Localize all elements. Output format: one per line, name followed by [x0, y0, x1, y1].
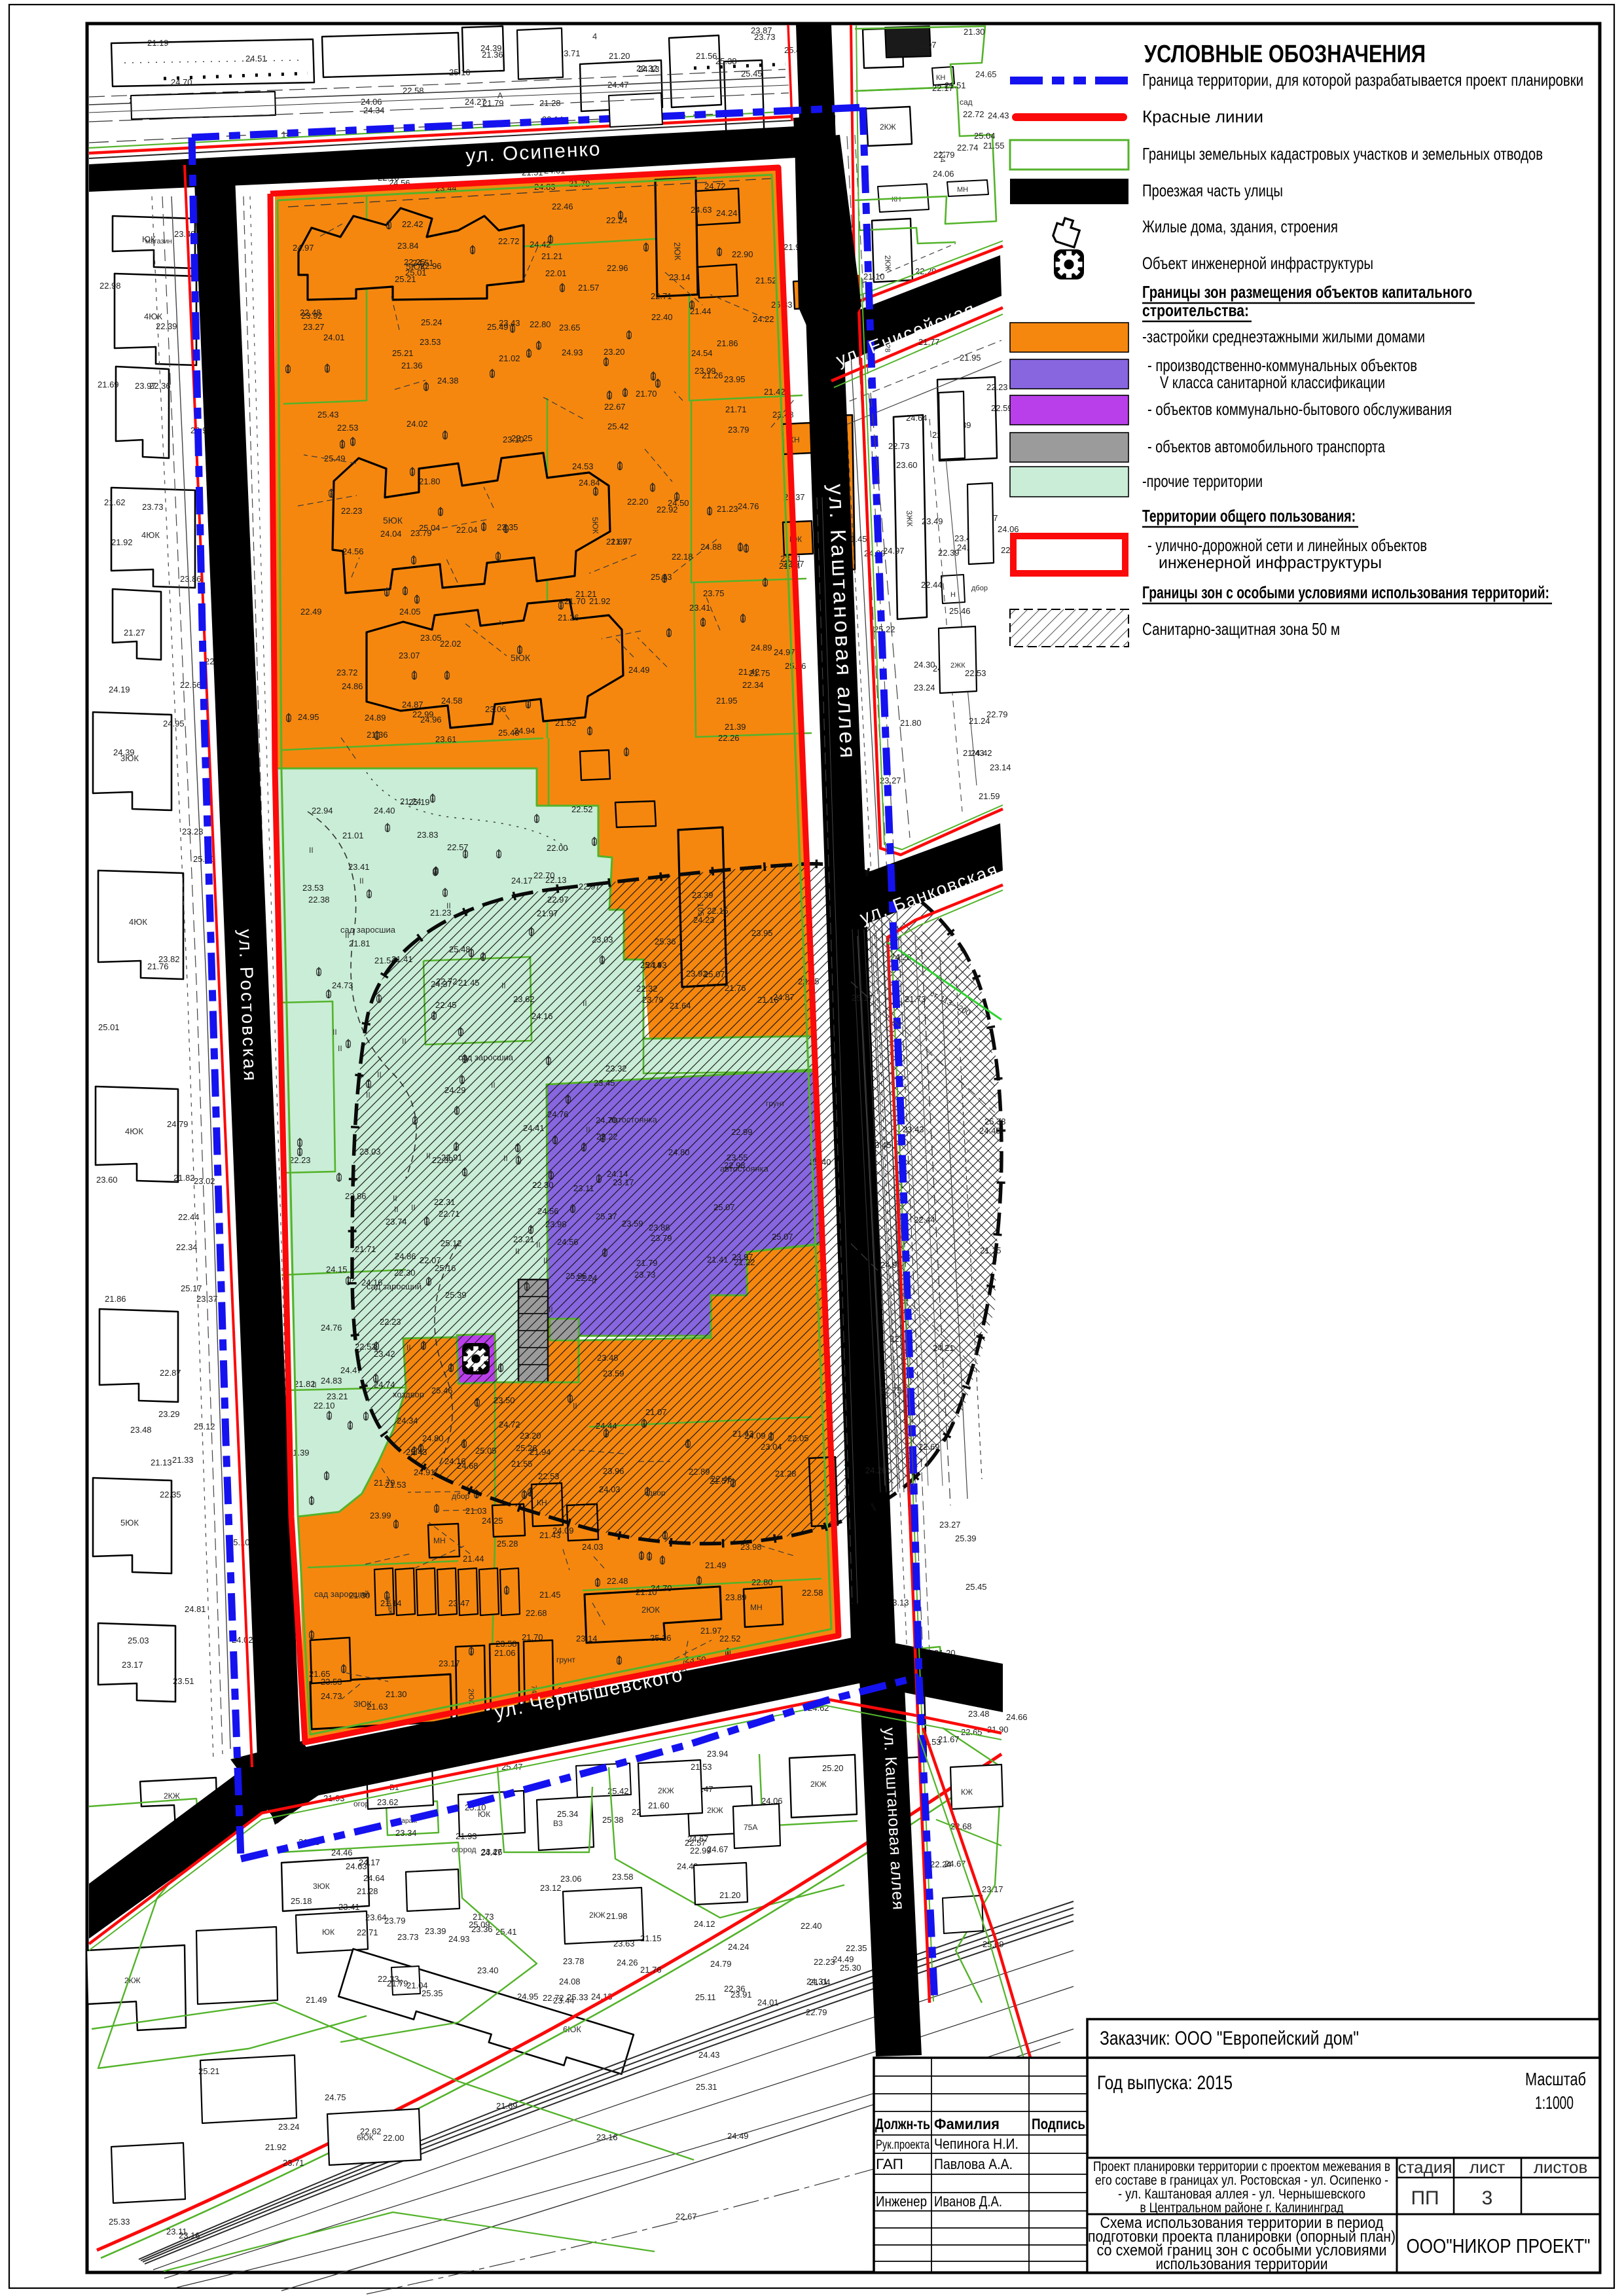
- svg-text:22.02: 22.02: [440, 639, 461, 649]
- svg-text:Н: Н: [950, 591, 956, 599]
- svg-text:- ул. Каштановая аллея - ул. Ч: - ул. Каштановая аллея - ул. Чернышевско…: [1118, 2187, 1365, 2202]
- svg-text:24.02: 24.02: [406, 419, 428, 429]
- svg-text:21.67: 21.67: [938, 1734, 960, 1744]
- svg-text:25.28: 25.28: [497, 1539, 518, 1549]
- svg-text:21.26: 21.26: [558, 613, 579, 622]
- svg-text:23.61: 23.61: [435, 734, 457, 744]
- svg-text:22.53: 22.53: [965, 668, 986, 678]
- svg-text:2КЖ: 2КЖ: [883, 255, 893, 272]
- svg-text:23.21: 23.21: [327, 1391, 348, 1401]
- svg-text:21.65: 21.65: [309, 1669, 331, 1679]
- svg-text:25.45: 25.45: [965, 1582, 987, 1592]
- svg-text:24.03: 24.03: [582, 1542, 604, 1552]
- svg-text:21.49: 21.49: [306, 1995, 327, 2005]
- svg-text:21.30: 21.30: [349, 1590, 370, 1600]
- svg-text:23.29: 23.29: [158, 1409, 180, 1419]
- svg-text:24.40: 24.40: [979, 1126, 1001, 1136]
- svg-text:25.43: 25.43: [317, 410, 339, 420]
- svg-text:23.17: 23.17: [122, 1660, 143, 1670]
- svg-text:Подпись: Подпись: [1032, 2115, 1085, 2132]
- svg-text:24.63: 24.63: [346, 1861, 367, 1871]
- svg-text:В3: В3: [553, 1819, 563, 1828]
- svg-text:его составе в границах ул. Рос: его составе в границах ул. Ростовская - …: [1095, 2173, 1388, 2188]
- svg-text:2КЖ: 2КЖ: [707, 1806, 723, 1815]
- svg-text:25.38: 25.38: [715, 56, 737, 66]
- svg-text:24.88: 24.88: [700, 542, 722, 552]
- svg-text:22.40: 22.40: [801, 1921, 822, 1931]
- svg-text:23.73: 23.73: [754, 32, 776, 42]
- svg-text:22.80: 22.80: [751, 1577, 773, 1587]
- svg-text:22.42: 22.42: [402, 219, 424, 229]
- svg-text:23.53: 23.53: [420, 337, 441, 347]
- svg-text:25.30: 25.30: [840, 1963, 861, 1973]
- svg-text:24.12: 24.12: [694, 1919, 715, 1929]
- svg-text:23.73: 23.73: [142, 502, 164, 512]
- svg-text:22.00: 22.00: [383, 2133, 405, 2143]
- svg-text:23.23: 23.23: [182, 827, 204, 836]
- svg-text:24.70: 24.70: [171, 77, 192, 87]
- svg-text:КН: КН: [892, 196, 901, 204]
- svg-text:23.94: 23.94: [707, 1749, 729, 1759]
- svg-text:22.52: 22.52: [719, 1634, 741, 1643]
- svg-text:Граница территории, для которо: Граница территории, для которой разрабат…: [1142, 70, 1583, 90]
- svg-text:21.30: 21.30: [386, 1689, 407, 1699]
- svg-text:24.01: 24.01: [323, 332, 345, 342]
- svg-text:24.53: 24.53: [572, 461, 594, 471]
- svg-text:23.78: 23.78: [563, 1956, 585, 1966]
- svg-text:25.17: 25.17: [852, 993, 873, 1003]
- svg-text:75А: 75А: [744, 1823, 757, 1832]
- svg-text:24.97: 24.97: [293, 243, 314, 253]
- svg-text:25.19: 25.19: [408, 797, 430, 807]
- svg-text:25.16: 25.16: [449, 67, 471, 77]
- svg-text:2КЖ: 2КЖ: [164, 1791, 180, 1801]
- svg-text:23.48: 23.48: [968, 1709, 990, 1719]
- svg-text:23.79: 23.79: [410, 528, 432, 538]
- svg-text:-застройки среднеэтажными жилы: -застройки среднеэтажными жилыми домами: [1142, 327, 1425, 346]
- svg-text:Павлова А.А.: Павлова А.А.: [934, 2156, 1013, 2172]
- svg-text:21.98: 21.98: [606, 1911, 628, 1921]
- svg-text:22.80: 22.80: [530, 319, 551, 329]
- svg-text:21.03: 21.03: [465, 1506, 487, 1516]
- svg-text:23.12: 23.12: [540, 1883, 562, 1893]
- svg-text:Масштаб: Масштаб: [1525, 2069, 1586, 2089]
- svg-text:25.31: 25.31: [696, 2082, 717, 2092]
- svg-text:24.27: 24.27: [465, 97, 486, 107]
- svg-text:24.79: 24.79: [167, 1119, 189, 1129]
- svg-text:24.93: 24.93: [448, 1934, 470, 1944]
- svg-text:21.53: 21.53: [691, 1762, 712, 1772]
- svg-text:22.35: 22.35: [160, 1490, 181, 1499]
- svg-text:22.40: 22.40: [651, 312, 673, 322]
- svg-text:22.44: 22.44: [921, 580, 943, 590]
- svg-text:25.17: 25.17: [181, 1283, 202, 1293]
- svg-text:21.62: 21.62: [104, 497, 126, 507]
- svg-text:21.55: 21.55: [983, 141, 1005, 151]
- svg-text:21.92: 21.92: [111, 537, 133, 547]
- svg-text:21.04: 21.04: [406, 1981, 428, 1990]
- svg-text:ООО"НИКОР ПРОЕКТ": ООО"НИКОР ПРОЕКТ": [1407, 2234, 1591, 2257]
- svg-text:Рук.проекта: Рук.проекта: [876, 2138, 929, 2152]
- svg-text:25.21: 25.21: [198, 2066, 220, 2076]
- svg-text:21.70: 21.70: [636, 389, 657, 399]
- svg-text:25.43: 25.43: [651, 572, 672, 582]
- svg-text:25.41: 25.41: [496, 1927, 517, 1937]
- svg-text:21.73: 21.73: [905, 994, 926, 1004]
- svg-text:21.42: 21.42: [764, 387, 785, 397]
- svg-text:23.07: 23.07: [399, 651, 420, 660]
- svg-text:22.25: 22.25: [511, 433, 533, 443]
- svg-text:Заказчик: ООО "Европейский дом: Заказчик: ООО "Европейский дом": [1100, 2028, 1359, 2049]
- svg-text:4ЮК: 4ЮК: [125, 1126, 143, 1136]
- svg-text:22.38: 22.38: [308, 895, 330, 905]
- svg-text:24.89: 24.89: [751, 643, 772, 653]
- svg-text:25.09: 25.09: [983, 1939, 1004, 1949]
- svg-text:-прочие территории: -прочие территории: [1142, 471, 1263, 491]
- svg-text:23.41: 23.41: [338, 1902, 360, 1912]
- svg-text:22.01: 22.01: [545, 268, 567, 278]
- svg-text:24.81: 24.81: [185, 1604, 206, 1614]
- svg-text:25.26: 25.26: [650, 1633, 672, 1643]
- svg-text:2КЖ: 2КЖ: [658, 1786, 674, 1795]
- svg-text:24.96: 24.96: [420, 715, 442, 725]
- svg-text:ПП: ПП: [1411, 2187, 1439, 2209]
- svg-text:21.56: 21.56: [696, 51, 717, 61]
- svg-text:II: II: [333, 1028, 337, 1037]
- svg-text:24.73: 24.73: [321, 1691, 342, 1701]
- svg-text:II: II: [446, 901, 451, 910]
- svg-text:II: II: [359, 876, 364, 886]
- svg-text:24.38: 24.38: [437, 376, 459, 386]
- svg-text:21.52: 21.52: [755, 276, 777, 285]
- svg-text:24.25: 24.25: [482, 1516, 503, 1526]
- svg-text:24.24: 24.24: [716, 208, 738, 218]
- svg-text:22.39: 22.39: [938, 548, 960, 558]
- svg-text:22.59: 22.59: [991, 403, 1013, 413]
- svg-text:23.53: 23.53: [302, 883, 324, 893]
- svg-text:2ЖК: 2ЖК: [950, 662, 965, 670]
- svg-text:24.87: 24.87: [402, 700, 424, 709]
- svg-text:25.04: 25.04: [974, 131, 996, 141]
- svg-text:листов: листов: [1534, 2157, 1588, 2177]
- svg-text:25.09: 25.09: [469, 1920, 490, 1929]
- svg-text:22.74: 22.74: [957, 143, 979, 152]
- svg-text:22.49: 22.49: [300, 607, 322, 617]
- svg-text:24.79: 24.79: [710, 1959, 732, 1969]
- svg-text:24.01: 24.01: [757, 1998, 779, 2007]
- svg-text:22.34: 22.34: [176, 1242, 198, 1252]
- svg-text:24.66: 24.66: [1006, 1712, 1028, 1722]
- svg-text:23.64: 23.64: [365, 1912, 387, 1922]
- svg-text:24.95: 24.95: [298, 712, 319, 722]
- svg-text:2КЖ: 2КЖ: [880, 122, 896, 132]
- svg-text:24.58: 24.58: [441, 696, 463, 706]
- svg-text:22.48: 22.48: [300, 308, 321, 317]
- svg-text:Красные линии: Красные линии: [1142, 107, 1263, 126]
- svg-text:дбор: дбор: [452, 1492, 470, 1501]
- svg-text:22.96: 22.96: [607, 263, 628, 273]
- svg-text:Санитарно-защитная зона 50 м: Санитарно-защитная зона 50 м: [1142, 619, 1340, 639]
- svg-text:Объект инженерной инфраструкту: Объект инженерной инфраструктуры: [1142, 253, 1373, 273]
- svg-text:Проезжая часть улицы: Проезжая часть улицы: [1142, 181, 1283, 200]
- svg-text:лист: лист: [1470, 2157, 1506, 2177]
- svg-text:V класса санитарной классифика: V класса санитарной классификации: [1160, 372, 1385, 392]
- svg-text:22.79: 22.79: [986, 709, 1008, 719]
- svg-text:24.95: 24.95: [517, 1992, 539, 2001]
- svg-text:22.52: 22.52: [571, 804, 593, 814]
- svg-text:24.76: 24.76: [321, 1323, 342, 1333]
- svg-text:22.71: 22.71: [651, 291, 672, 301]
- svg-text:21.59: 21.59: [979, 791, 1000, 801]
- svg-text:Год выпуска: 2015: Год выпуска: 2015: [1097, 2072, 1233, 2094]
- svg-text:23.40: 23.40: [477, 1965, 499, 1975]
- svg-text:22.10: 22.10: [314, 1401, 335, 1410]
- svg-text:22.35: 22.35: [846, 1943, 867, 1953]
- svg-text:22.72: 22.72: [963, 109, 984, 119]
- svg-text:23.79: 23.79: [728, 425, 749, 435]
- svg-text:24.67: 24.67: [707, 1844, 729, 1854]
- svg-text:2КЖ: 2КЖ: [810, 1780, 827, 1789]
- svg-text:24.63: 24.63: [691, 205, 712, 215]
- svg-text:23.71: 23.71: [283, 2158, 304, 2168]
- svg-text:21.71: 21.71: [725, 404, 747, 414]
- svg-text:22.87: 22.87: [160, 1368, 181, 1378]
- svg-text:24.64: 24.64: [363, 1873, 385, 1883]
- svg-text:23.58: 23.58: [496, 1639, 517, 1649]
- svg-text:22.23: 22.23: [289, 1155, 311, 1165]
- svg-text:24.07: 24.07: [915, 40, 937, 50]
- svg-text:24.43: 24.43: [698, 2050, 720, 2060]
- svg-text:25.46: 25.46: [949, 606, 971, 616]
- svg-text:23.60: 23.60: [96, 1175, 118, 1185]
- svg-text:23.05: 23.05: [420, 633, 442, 643]
- svg-text:22.46: 22.46: [552, 202, 573, 211]
- svg-text:25.33: 25.33: [984, 1117, 1006, 1126]
- svg-text:21.44: 21.44: [463, 1554, 484, 1564]
- svg-text:21.36: 21.36: [482, 50, 503, 60]
- svg-text:21.23: 21.23: [717, 504, 738, 514]
- svg-text:24.06: 24.06: [933, 169, 954, 179]
- svg-text:23.14: 23.14: [576, 1634, 598, 1643]
- svg-text:24.39: 24.39: [113, 747, 135, 757]
- svg-text:24.04: 24.04: [380, 529, 402, 539]
- svg-text:МН: МН: [433, 1536, 446, 1545]
- svg-text:21.30: 21.30: [964, 27, 985, 37]
- svg-text:стадия: стадия: [1398, 2157, 1453, 2177]
- svg-text:23.51: 23.51: [173, 1676, 194, 1686]
- svg-text:23.27: 23.27: [880, 776, 901, 785]
- svg-text:25.36: 25.36: [785, 661, 806, 671]
- svg-text:24.72: 24.72: [704, 181, 726, 191]
- svg-text:6ЮК: 6ЮК: [563, 2024, 581, 2034]
- svg-text:23.49: 23.49: [922, 516, 943, 526]
- svg-text:23.43: 23.43: [499, 318, 520, 328]
- svg-text:21.39: 21.39: [725, 722, 746, 732]
- svg-text:21.76: 21.76: [640, 1965, 662, 1975]
- svg-text:Территории общего пользования:: Территории общего пользования:: [1142, 506, 1356, 526]
- svg-text:строительства:: строительства:: [1142, 300, 1249, 320]
- svg-text:21.20: 21.20: [719, 1890, 741, 1900]
- svg-text:23.44: 23.44: [553, 1996, 575, 2005]
- svg-text:23.82: 23.82: [158, 954, 180, 964]
- svg-text:дбор: дбор: [971, 584, 988, 592]
- svg-text:22.62: 22.62: [360, 2126, 382, 2136]
- svg-text:23.60: 23.60: [896, 460, 918, 470]
- svg-text:24.26: 24.26: [865, 1465, 887, 1475]
- svg-text:II: II: [312, 1380, 317, 1390]
- svg-text:- объектов автомобильного тран: - объектов автомобильного транспорта: [1147, 437, 1385, 456]
- svg-text:22.58: 22.58: [403, 86, 424, 96]
- svg-text:25.34: 25.34: [557, 1809, 579, 1819]
- svg-text:21.95: 21.95: [716, 696, 738, 706]
- svg-text:3ЖК: 3ЖК: [905, 511, 914, 527]
- svg-text:использования территории: использования территории: [1156, 2255, 1328, 2273]
- svg-text:23.41: 23.41: [689, 603, 711, 613]
- svg-text:24.43: 24.43: [988, 111, 1009, 120]
- svg-text:23.65: 23.65: [559, 323, 581, 332]
- svg-text:23.34: 23.34: [395, 1828, 417, 1838]
- svg-text:21.57: 21.57: [578, 283, 600, 293]
- svg-text:23.14: 23.14: [990, 762, 1011, 772]
- svg-text:22.23: 22.23: [341, 506, 363, 516]
- svg-text:21.86: 21.86: [105, 1294, 126, 1304]
- svg-text:22.20: 22.20: [627, 497, 649, 507]
- svg-text:МН: МН: [957, 186, 968, 194]
- svg-text:22.72: 22.72: [498, 236, 520, 246]
- svg-text:23.27: 23.27: [939, 1520, 961, 1530]
- svg-text:Должн-ть: Должн-ть: [875, 2115, 930, 2132]
- svg-text:21.13: 21.13: [151, 1458, 172, 1467]
- svg-text:22.67: 22.67: [676, 2212, 697, 2221]
- svg-text:24.76: 24.76: [738, 501, 759, 511]
- svg-text:Жилые дома, здания, строения: Жилые дома, здания, строения: [1142, 217, 1338, 236]
- svg-text:24.75: 24.75: [325, 2092, 346, 2102]
- svg-text:23.95: 23.95: [724, 374, 746, 384]
- svg-text:21.15: 21.15: [980, 1246, 1001, 1255]
- svg-text:23.16: 23.16: [596, 2132, 618, 2142]
- svg-text:25.11: 25.11: [695, 1992, 716, 2002]
- svg-text:Инженер: Инженер: [876, 2193, 927, 2210]
- svg-text:23.20: 23.20: [604, 347, 625, 357]
- svg-text:21.52: 21.52: [555, 718, 577, 728]
- svg-text:21.43: 21.43: [539, 1530, 561, 1540]
- svg-text:Границы земельных кадастровых: Границы земельных кадастровых участков и…: [1142, 144, 1543, 164]
- svg-text:II: II: [309, 846, 314, 855]
- svg-text:22.17: 22.17: [932, 83, 954, 93]
- svg-text:УСЛОВНЫЕ ОБОЗНАЧЕНИЯ: УСЛОВНЫЕ ОБОЗНАЧЕНИЯ: [1144, 41, 1426, 68]
- svg-text:25.21: 25.21: [392, 348, 414, 358]
- svg-text:Чепинога Н.И.: Чепинога Н.И.: [934, 2136, 1019, 2152]
- svg-text:22.44: 22.44: [178, 1212, 200, 1222]
- svg-text:3: 3: [1482, 2187, 1493, 2209]
- svg-text:21.92: 21.92: [589, 596, 611, 606]
- svg-text:21.69: 21.69: [606, 537, 628, 547]
- svg-text:5ЮК: 5ЮК: [120, 1518, 139, 1528]
- svg-text:23.17: 23.17: [982, 1884, 1003, 1894]
- svg-text:ЮК: ЮК: [322, 1928, 334, 1937]
- svg-text:Границы зон с особыми условиям: Границы зон с особыми условиями использо…: [1142, 583, 1549, 602]
- svg-text:24.26: 24.26: [617, 1958, 638, 1967]
- svg-text:24.15: 24.15: [326, 1265, 348, 1274]
- svg-text:24.22: 24.22: [753, 314, 774, 324]
- svg-text:грунт: грунт: [556, 1655, 576, 1664]
- svg-text:23.75: 23.75: [703, 588, 725, 598]
- svg-text:22.53: 22.53: [337, 423, 359, 433]
- svg-text:23.48: 23.48: [130, 1425, 152, 1435]
- svg-text:23.99: 23.99: [370, 1511, 391, 1520]
- svg-text:23.39: 23.39: [425, 1926, 446, 1936]
- svg-text:инженерной инфраструктуры: инженерной инфраструктуры: [1159, 552, 1382, 572]
- svg-text:21.45: 21.45: [539, 1590, 561, 1600]
- svg-text:24.84: 24.84: [579, 478, 600, 488]
- svg-text:22.23: 22.23: [814, 1957, 835, 1967]
- svg-text:24.93: 24.93: [562, 348, 583, 357]
- svg-text:МН: МН: [750, 1603, 763, 1612]
- svg-text:22.13: 22.13: [545, 875, 567, 885]
- svg-text:21.10: 21.10: [636, 1587, 657, 1597]
- svg-text:24.30: 24.30: [914, 660, 935, 670]
- svg-text:23.27: 23.27: [303, 322, 325, 332]
- svg-text:21.69: 21.69: [496, 2101, 518, 2111]
- svg-text:21.42: 21.42: [738, 667, 760, 677]
- svg-text:21.21: 21.21: [541, 251, 563, 261]
- svg-text:21.01: 21.01: [342, 831, 364, 840]
- svg-text:24.42: 24.42: [530, 240, 551, 249]
- svg-text:21.44: 21.44: [690, 306, 712, 316]
- svg-text:25.48: 25.48: [498, 728, 520, 738]
- svg-text:21.70: 21.70: [522, 1632, 543, 1642]
- svg-text:25.20: 25.20: [822, 1763, 844, 1773]
- svg-text:23.83: 23.83: [417, 830, 439, 840]
- svg-text:23.26: 23.26: [481, 1847, 503, 1857]
- svg-text:23.14: 23.14: [669, 272, 691, 282]
- svg-text:22.90: 22.90: [732, 249, 753, 259]
- svg-text:21.63: 21.63: [367, 1702, 388, 1712]
- svg-text:Иванов Д.А.: Иванов Д.А.: [934, 2193, 1002, 2210]
- svg-text:22.32: 22.32: [636, 63, 658, 73]
- svg-text:24.08: 24.08: [559, 1977, 581, 1986]
- svg-text:23.06: 23.06: [485, 704, 507, 714]
- svg-text:25.12: 25.12: [194, 1422, 215, 1431]
- svg-text:21.70: 21.70: [564, 596, 586, 606]
- svg-text:21.33: 21.33: [172, 1455, 194, 1465]
- svg-text:24.89: 24.89: [365, 713, 386, 723]
- svg-text:23.79: 23.79: [384, 1916, 406, 1926]
- svg-text:5ЮК: 5ЮК: [511, 653, 531, 663]
- svg-text:24.40: 24.40: [374, 806, 395, 816]
- svg-text:23.47: 23.47: [448, 1598, 470, 1608]
- svg-text:24.86: 24.86: [342, 681, 363, 691]
- svg-text:21.82: 21.82: [173, 1173, 195, 1183]
- svg-text:21.80: 21.80: [900, 718, 922, 728]
- svg-text:23.11: 23.11: [166, 2227, 187, 2236]
- svg-text:23.35: 23.35: [497, 522, 518, 532]
- svg-text:25.42: 25.42: [607, 422, 629, 431]
- svg-text:22.58: 22.58: [802, 1588, 823, 1598]
- svg-text:21.97: 21.97: [700, 1626, 722, 1636]
- svg-text:21.43: 21.43: [963, 748, 984, 758]
- svg-text:21.06: 21.06: [494, 1648, 516, 1658]
- svg-text:21.80: 21.80: [419, 476, 441, 486]
- svg-text:21.92: 21.92: [265, 2142, 287, 2152]
- svg-text:21.02: 21.02: [499, 353, 520, 363]
- svg-text:21.20: 21.20: [609, 51, 630, 61]
- svg-text:24.56: 24.56: [342, 547, 364, 556]
- svg-text:21.49: 21.49: [705, 1560, 727, 1570]
- svg-text:24.17: 24.17: [511, 876, 533, 886]
- svg-text:24.97: 24.97: [883, 546, 905, 556]
- svg-text:25.49: 25.49: [324, 454, 346, 463]
